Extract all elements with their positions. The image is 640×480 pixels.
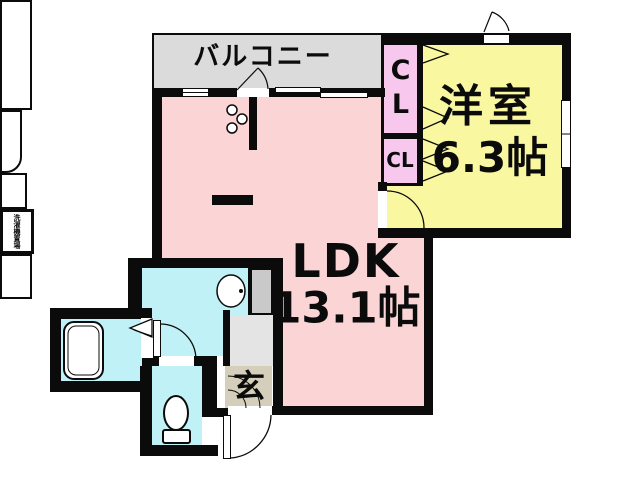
wall xyxy=(152,88,162,268)
wall xyxy=(194,356,217,366)
kitchen-wall-stub xyxy=(249,88,257,150)
window-opening xyxy=(561,100,571,168)
wall xyxy=(128,258,142,310)
toilet-door-opening xyxy=(159,357,194,365)
closet-tall: C L xyxy=(381,40,420,136)
wall xyxy=(128,258,283,268)
floor-plan: C L 洗濯機置場 xyxy=(0,0,640,480)
wall xyxy=(140,366,152,456)
window-opening xyxy=(483,34,510,44)
closet-tall-letter-l: L xyxy=(392,88,409,122)
western-room-label: 洋室 xyxy=(439,85,537,129)
door-leaf xyxy=(153,320,161,357)
ldk-size: 13.1帖 xyxy=(271,288,420,331)
laundry-label: 洗濯機置場 xyxy=(12,214,22,249)
closet-small-label: CL xyxy=(386,150,413,170)
entrance-door-swing-icon xyxy=(231,415,271,458)
laundry-pan: 洗濯機置場 xyxy=(0,209,34,254)
entrance-label: 玄 xyxy=(233,370,265,402)
window-opening xyxy=(182,88,209,97)
toilet-area xyxy=(152,366,202,445)
bathroom-area xyxy=(61,319,142,381)
kitchen-wall-stub xyxy=(212,195,253,205)
balcony-door-opening xyxy=(237,88,269,97)
door-opening xyxy=(378,191,387,228)
wall xyxy=(272,406,433,415)
wall xyxy=(223,310,230,366)
wall xyxy=(417,40,423,186)
wall xyxy=(424,237,433,415)
sliding-window xyxy=(320,92,368,98)
balcony-label: バルコニー xyxy=(193,44,332,70)
western-room-size: 6.3帖 xyxy=(432,137,548,179)
ldk-label: LDK xyxy=(291,238,400,284)
casement-window-icon xyxy=(484,12,509,32)
western-room-notch xyxy=(381,184,424,234)
stove-icon xyxy=(0,173,27,209)
vanity-counter xyxy=(0,254,32,299)
pipe-space xyxy=(250,268,273,315)
sliding-window xyxy=(275,87,321,93)
kitchen-counter xyxy=(0,0,32,110)
wall xyxy=(378,182,387,191)
kitchen-counter-return xyxy=(0,110,22,173)
wall xyxy=(202,366,217,408)
hall-area xyxy=(230,315,273,366)
wall xyxy=(381,33,571,45)
entrance-door-leaf xyxy=(223,415,231,459)
entrance-door-opening xyxy=(228,406,272,416)
closet-tall-letter-c: C xyxy=(391,54,411,88)
wall xyxy=(140,445,218,456)
wall xyxy=(378,228,571,238)
bathroom-door-opening xyxy=(141,318,153,358)
